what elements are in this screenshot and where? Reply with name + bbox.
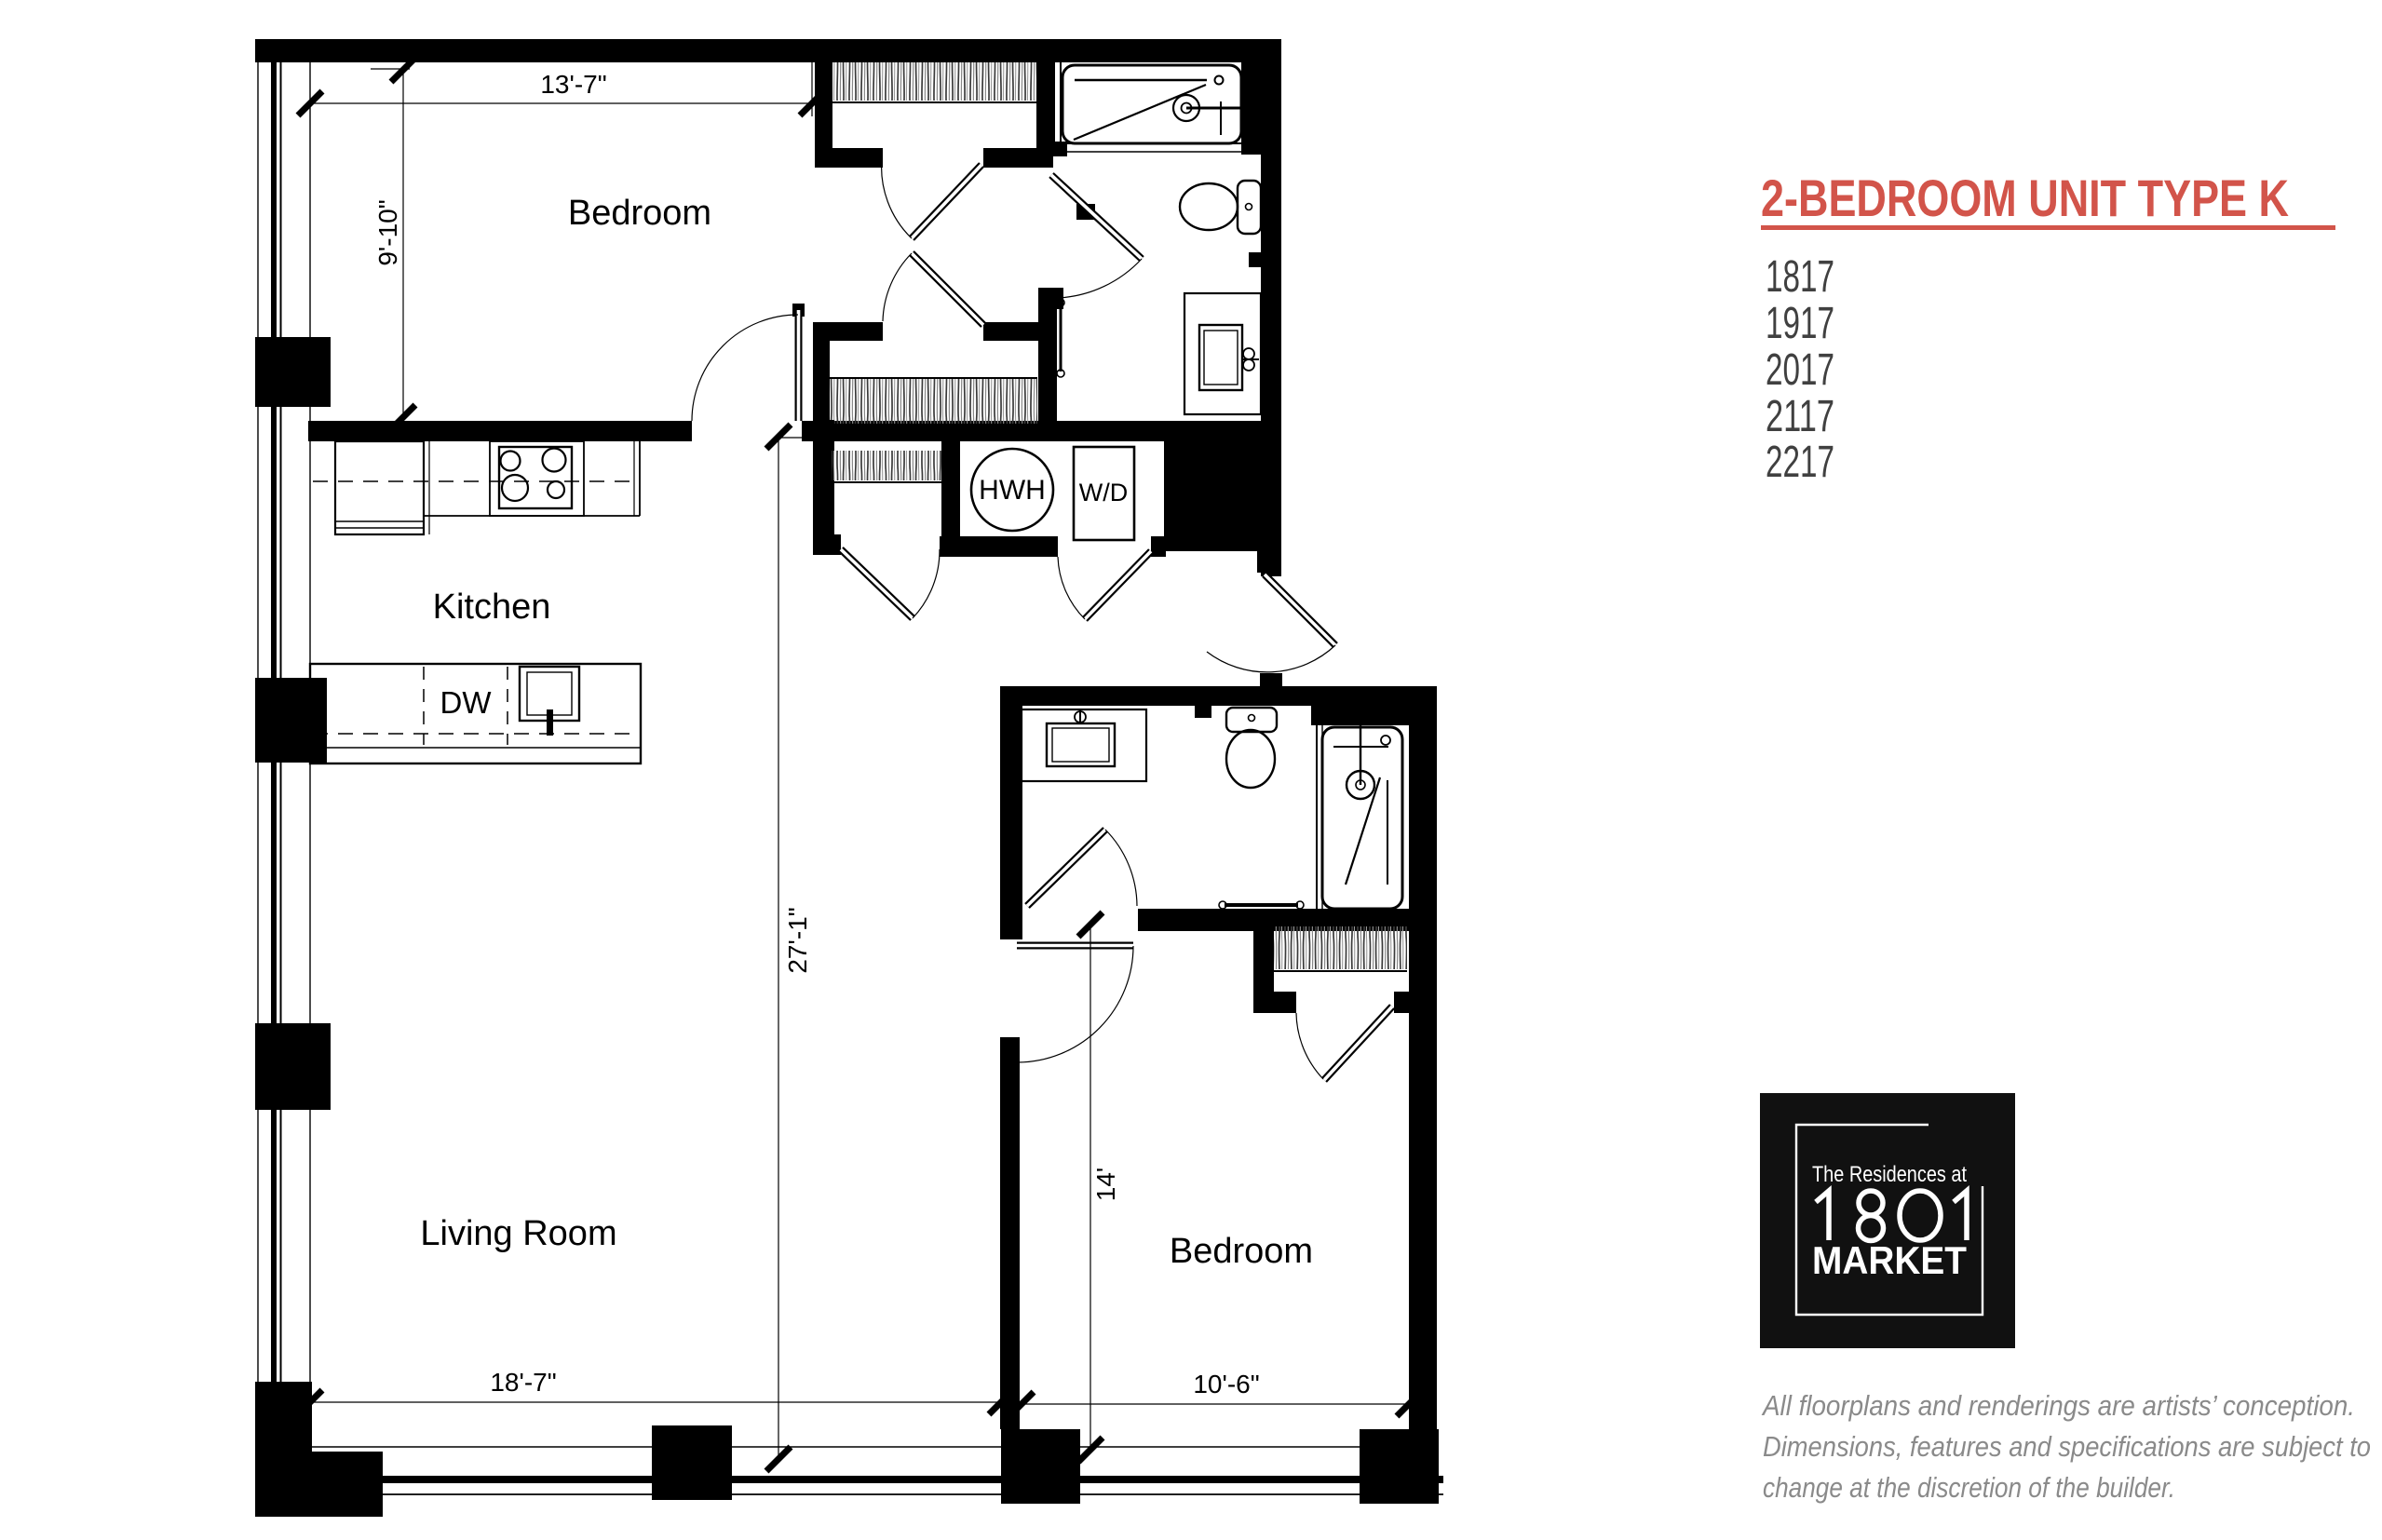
svg-text:MARKET: MARKET [1812, 1238, 1967, 1282]
svg-text:Dimensions, features and speci: Dimensions, features and specifications … [1763, 1430, 2371, 1463]
svg-text:18'-7": 18'-7" [490, 1368, 556, 1397]
svg-text:2217: 2217 [1766, 438, 1834, 487]
svg-text:Bedroom: Bedroom [568, 194, 711, 233]
svg-text:2117: 2117 [1766, 392, 1834, 441]
svg-text:2017: 2017 [1766, 345, 1834, 395]
svg-text:Living Room: Living Room [420, 1214, 616, 1253]
svg-text:14': 14' [1091, 1168, 1120, 1202]
svg-text:9'-10": 9'-10" [373, 199, 402, 265]
svg-text:Kitchen: Kitchen [433, 588, 551, 627]
svg-text:1917: 1917 [1766, 299, 1834, 348]
svg-text:W/D: W/D [1079, 479, 1128, 507]
svg-text:The Residences at: The Residences at [1812, 1162, 1967, 1187]
svg-text:1817: 1817 [1766, 252, 1834, 302]
svg-text:Bedroom: Bedroom [1170, 1232, 1313, 1271]
svg-text:13'-7": 13'-7" [540, 70, 606, 99]
svg-text:2-BEDROOM UNIT TYPE K: 2-BEDROOM UNIT TYPE K [1761, 169, 2289, 227]
svg-text:HWH: HWH [979, 475, 1046, 506]
svg-text:27'-1": 27'-1" [783, 907, 812, 973]
svg-text:DW: DW [440, 685, 493, 720]
svg-text:All floorplans and renderings: All floorplans and renderings are artist… [1761, 1389, 2355, 1422]
svg-text:change at the discretion of th: change at the discretion of the builder. [1763, 1471, 2175, 1504]
svg-text:10'-6": 10'-6" [1193, 1370, 1259, 1398]
